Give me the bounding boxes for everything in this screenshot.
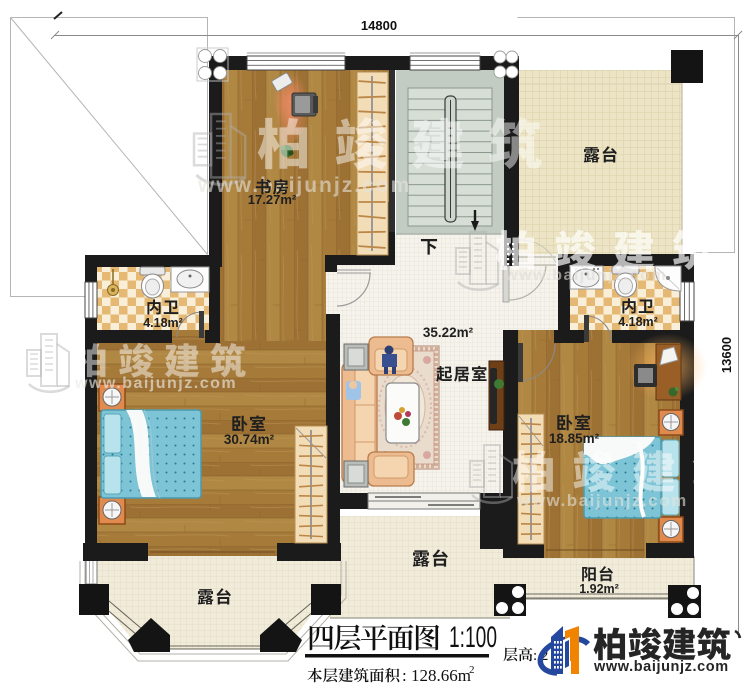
svg-text:4.18m²: 4.18m² bbox=[618, 315, 658, 329]
svg-text:www.baijunjz.com: www.baijunjz.com bbox=[197, 174, 411, 197]
svg-text:35.22m²: 35.22m² bbox=[423, 325, 474, 340]
svg-text:www.baijunjz.com: www.baijunjz.com bbox=[516, 491, 688, 510]
svg-text:4.18m²: 4.18m² bbox=[143, 316, 183, 330]
svg-text:2: 2 bbox=[469, 664, 475, 676]
svg-text:18.85m²: 18.85m² bbox=[549, 431, 600, 446]
svg-text:: 128.66m: : 128.66m bbox=[402, 666, 471, 685]
svg-text:30.74m²: 30.74m² bbox=[224, 432, 275, 447]
svg-text:www.baijunjz.com: www.baijunjz.com bbox=[593, 659, 729, 675]
svg-text:www.baijunjz.com: www.baijunjz.com bbox=[504, 267, 667, 284]
svg-text:www.baijunjz.com: www.baijunjz.com bbox=[74, 375, 237, 392]
svg-text:1:100: 1:100 bbox=[449, 621, 497, 654]
svg-text:14800: 14800 bbox=[361, 18, 397, 33]
svg-text:17.27m²: 17.27m² bbox=[248, 192, 297, 207]
svg-text:13600: 13600 bbox=[719, 337, 734, 373]
svg-text:1.92m²: 1.92m² bbox=[579, 582, 619, 596]
